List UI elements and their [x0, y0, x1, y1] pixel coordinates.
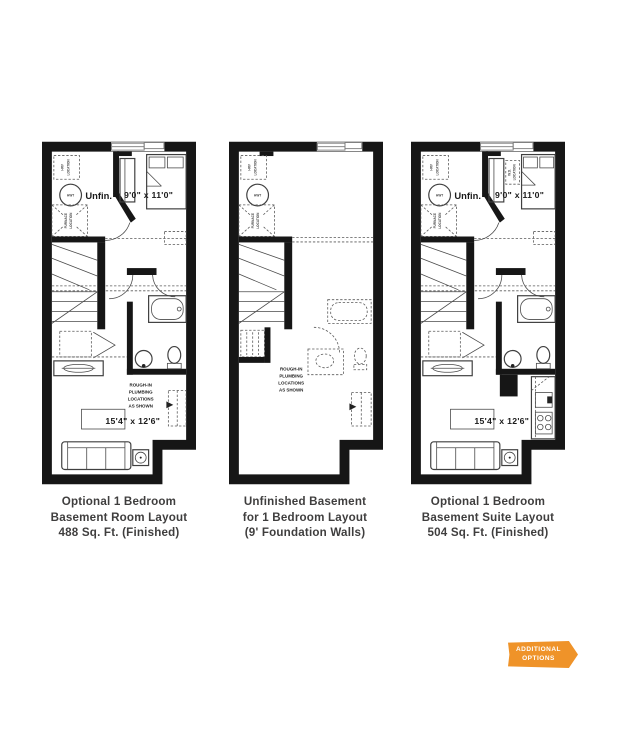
floor-plan-unfinished-basement: HRV LOCATION HWT FURNACE LOCATION [229, 140, 383, 487]
closet-wall-vertical [265, 327, 271, 363]
understair-closet [60, 331, 115, 358]
svg-text:PLUMBING: PLUMBING [279, 374, 303, 379]
wd-location-box: W.D. LOCATION [506, 160, 520, 184]
living-dims: 15'4" x 12'6" [105, 416, 160, 426]
sink [135, 351, 152, 368]
roughin-plumbing-label: ROUGH-IN PLUMBING LOCATIONS AS SHOWN [128, 383, 154, 409]
caption-line: Optional 1 Bedroom [398, 494, 578, 510]
toilet [536, 347, 550, 369]
electrical-panel [54, 361, 103, 376]
kitchen [531, 377, 555, 439]
beam-dashed [52, 286, 186, 291]
bathtub [518, 296, 556, 323]
badge-line-1: ADDITIONAL [516, 646, 561, 655]
svg-text:ROUGH-IN: ROUGH-IN [280, 367, 302, 372]
utility-wall [421, 237, 474, 243]
utility-wall [52, 237, 105, 243]
unfinished-label: Unfin. [454, 191, 481, 201]
svg-text:AS SHOWN: AS SHOWN [279, 387, 303, 392]
unfinished-label: Unfin. [85, 191, 112, 201]
sofa [431, 442, 500, 470]
living-dims: 15'4" x 12'6" [474, 416, 529, 426]
floor-plan-basement-suite-layout: HRV LOCATION HWT Unfin. FURNACE LOCATION [411, 140, 565, 487]
electrical-panel [423, 361, 472, 376]
stove [535, 412, 552, 434]
kitchen-sink [535, 392, 552, 407]
window [317, 142, 362, 151]
furnace-box: FURNACE LOCATION [421, 205, 457, 237]
hot-water-tank: HWT [247, 184, 269, 206]
plan-caption-unfinished: Unfinished Basement for 1 Bedroom Layout… [215, 494, 395, 541]
bathroom-wall-bottom [127, 369, 186, 375]
svg-text:LOCATIONS: LOCATIONS [128, 396, 154, 401]
caption-line: Unfinished Basement [215, 494, 395, 510]
bed [522, 155, 556, 209]
svg-text:HRV: HRV [248, 163, 252, 170]
caption-line: 504 Sq. Ft. (Finished) [398, 525, 578, 541]
bedroom-dims: 9'0" x 11'0" [495, 190, 544, 200]
hall-door-arc-left [478, 275, 502, 299]
bedroom-door-arc [105, 223, 130, 241]
toilet-roughin [354, 348, 367, 370]
hall-wall [496, 268, 526, 275]
svg-text:HWT: HWT [254, 194, 261, 198]
caption-line: 488 Sq. Ft. (Finished) [29, 525, 209, 541]
floorplan-brochure-page: HRV LOCATION HWT Unfin. FURNACE LOCATION [0, 0, 640, 747]
svg-text:LOCATION: LOCATION [513, 164, 517, 181]
plan-caption-basement-suite: Optional 1 Bedroom Basement Suite Layout… [398, 494, 578, 541]
understair-closet [241, 330, 265, 357]
svg-text:FURNACE: FURNACE [251, 213, 255, 228]
svg-text:FURNACE: FURNACE [64, 213, 68, 228]
svg-text:HRV: HRV [430, 163, 434, 170]
svg-text:HRV: HRV [61, 163, 65, 170]
hot-water-tank: HWT [429, 184, 451, 206]
sofa [62, 442, 131, 470]
stairs [239, 242, 292, 329]
bathtub-roughin [328, 300, 371, 324]
svg-text:HWT: HWT [436, 194, 443, 198]
hrv-box: HRV LOCATION [54, 156, 80, 180]
furnace-box: FURNACE LOCATION [52, 205, 88, 237]
caption-line: (9' Foundation Walls) [215, 525, 395, 541]
kitchen-wall-stub [500, 375, 518, 397]
washer-dryer-roughin [349, 392, 371, 426]
bathroom-wall-left [496, 302, 502, 375]
svg-text:LOCATION: LOCATION [256, 212, 260, 229]
sink-roughin [308, 349, 344, 375]
bulkhead-box [164, 232, 186, 245]
bulkhead-box [533, 232, 555, 245]
svg-text:LOCATION: LOCATION [67, 159, 71, 176]
hot-water-tank: HWT [60, 184, 82, 206]
svg-text:LOCATION: LOCATION [69, 212, 73, 229]
floor-plan-basement-room-layout: HRV LOCATION HWT Unfin. FURNACE LOCATION [42, 140, 196, 487]
utility-wall [239, 237, 292, 243]
svg-text:LOCATION: LOCATION [254, 159, 258, 176]
plan-caption-basement-room: Optional 1 Bedroom Basement Room Layout … [29, 494, 209, 541]
sink [504, 351, 521, 368]
bedroom-door-arc [474, 223, 499, 241]
exterior-walls [229, 142, 383, 485]
svg-text:LOCATIONS: LOCATIONS [278, 381, 304, 386]
window [111, 142, 164, 151]
svg-text:HWT: HWT [67, 194, 74, 198]
bedroom-dims: 9'0" x 11'0" [124, 190, 173, 200]
bulkhead-dashed [292, 237, 373, 241]
hrv-box: HRV LOCATION [241, 156, 267, 180]
bedroom-wall [113, 152, 119, 197]
washer-dryer-roughin [166, 391, 186, 427]
furnace-box: FURNACE LOCATION [239, 205, 275, 237]
roughin-plumbing-label: ROUGH-IN PLUMBING LOCATIONS AS SHOWN [278, 367, 304, 393]
svg-text:PLUMBING: PLUMBING [129, 389, 153, 394]
bedroom-wall [482, 152, 488, 197]
beam-dashed [421, 286, 555, 291]
bed [147, 155, 186, 209]
svg-text:LOCATION: LOCATION [438, 212, 442, 229]
svg-text:AS SHOWN: AS SHOWN [129, 403, 153, 408]
svg-text:W.D.: W.D. [508, 169, 512, 176]
svg-text:ROUGH-IN: ROUGH-IN [129, 383, 151, 388]
caption-line: Basement Room Layout [29, 510, 209, 526]
bathroom-wall-bottom [496, 369, 555, 375]
understair-closet [429, 331, 484, 358]
beam-tick [486, 152, 501, 156]
badge-line-2: OPTIONS [522, 655, 555, 664]
caption-line: Optional 1 Bedroom [29, 494, 209, 510]
additional-options-badge[interactable]: ADDITIONAL OPTIONS [508, 641, 578, 668]
window [480, 142, 533, 151]
svg-text:LOCATION: LOCATION [436, 159, 440, 176]
toilet [167, 347, 181, 369]
hall-wall [127, 268, 157, 275]
caption-line: Basement Suite Layout [398, 510, 578, 526]
hrv-box: HRV LOCATION [423, 156, 449, 180]
beam-tick [117, 152, 132, 156]
bathroom-wall-left [127, 302, 133, 375]
caption-line: for 1 Bedroom Layout [215, 510, 395, 526]
bathtub [149, 296, 187, 323]
hall-door-arc-left [109, 275, 133, 299]
closet-wall-horizontal [239, 357, 265, 363]
side-table [502, 450, 518, 466]
side-table [133, 450, 149, 466]
svg-text:FURNACE: FURNACE [433, 213, 437, 228]
